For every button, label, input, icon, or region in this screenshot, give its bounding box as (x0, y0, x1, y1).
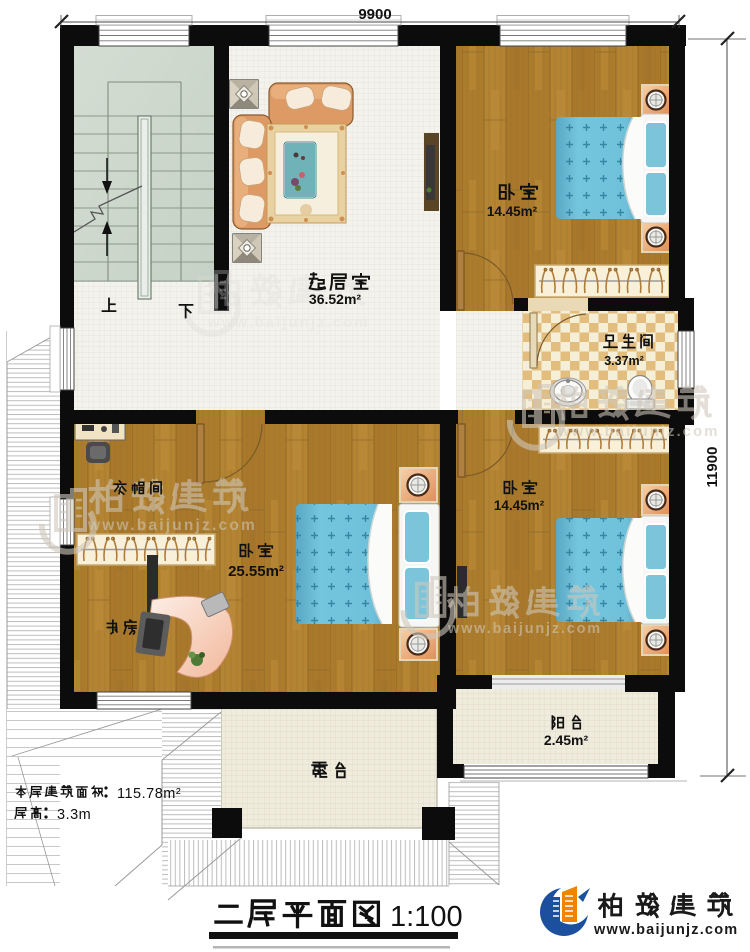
svg-text:1:100: 1:100 (390, 901, 463, 933)
svg-text:11900: 11900 (704, 447, 721, 488)
svg-text:25.55m²: 25.55m² (228, 563, 284, 580)
svg-text:www.baijunjz.com: www.baijunjz.com (207, 314, 369, 331)
svg-text:3.3m: 3.3m (57, 807, 91, 823)
svg-text:14.45m²: 14.45m² (487, 204, 538, 219)
svg-text:www.baijunjz.com: www.baijunjz.com (87, 517, 257, 534)
svg-text:www.baijunjz.com: www.baijunjz.com (593, 922, 738, 938)
svg-text:14.45m²: 14.45m² (494, 498, 545, 513)
svg-text:3.37m²: 3.37m² (604, 354, 644, 368)
svg-text:2.45m²: 2.45m² (544, 732, 589, 748)
svg-text:www.baijunjz.com: www.baijunjz.com (447, 621, 602, 637)
svg-text:9900: 9900 (358, 6, 391, 23)
svg-text:115.78m²: 115.78m² (117, 786, 181, 802)
svg-text:www.baijunjz.com: www.baijunjz.com (557, 423, 719, 440)
svg-text:36.52m²: 36.52m² (309, 291, 361, 307)
